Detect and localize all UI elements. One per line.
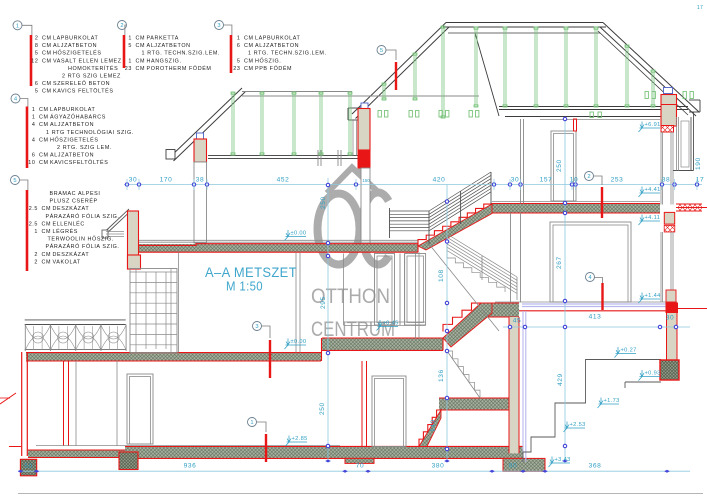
svg-text:70: 70: [356, 463, 365, 470]
svg-text:PLUSZ CSERÉP: PLUSZ CSERÉP: [50, 198, 98, 205]
svg-text:+2.85: +2.85: [292, 436, 308, 442]
svg-text:+4.41: +4.41: [645, 187, 661, 193]
svg-text:4: 4: [32, 122, 36, 128]
svg-text:1 RTG. TECHN.SZIG.LEM.: 1 RTG. TECHN.SZIG.LEM.: [248, 51, 327, 57]
svg-text:5: 5: [35, 51, 39, 57]
svg-text:2: 2: [587, 174, 590, 180]
svg-text:HŐSZIGETELÉS: HŐSZIGETELÉS: [53, 50, 102, 57]
svg-text:3: 3: [217, 23, 220, 29]
svg-text:HŐSZIGETELÉS: HŐSZIGETELÉS: [50, 136, 99, 143]
svg-text:190: 190: [695, 157, 702, 170]
svg-text:ALJZATBETON: ALJZATBETON: [50, 153, 94, 159]
svg-text:+2.53: +2.53: [570, 422, 586, 428]
svg-text:ALJZATBETON: ALJZATBETON: [147, 43, 191, 49]
svg-text:2 RTG. SZIG LEM.: 2 RTG. SZIG LEM.: [57, 145, 112, 151]
svg-text:CM: CM: [39, 115, 49, 121]
svg-text:HŐSZIG.: HŐSZIG.: [255, 57, 281, 64]
svg-text:5: 5: [35, 89, 39, 95]
svg-text:38: 38: [196, 177, 205, 184]
svg-text:38: 38: [662, 177, 671, 184]
svg-text:452: 452: [277, 177, 290, 184]
svg-text:KAVICS FELTÖLTÉS: KAVICS FELTÖLTÉS: [53, 88, 114, 95]
svg-text:17: 17: [696, 177, 705, 184]
svg-text:136: 136: [438, 369, 445, 382]
svg-text:VASALT ELLEN LEMEZ: VASALT ELLEN LEMEZ: [53, 58, 122, 64]
svg-text:ALJZATBETON: ALJZATBETON: [50, 122, 94, 128]
svg-text:ALJZATBETON: ALJZATBETON: [53, 43, 97, 49]
svg-text:170: 170: [160, 177, 173, 184]
svg-text:POROTHERM FÖDÉM: POROTHERM FÖDÉM: [147, 65, 212, 72]
svg-text:253: 253: [611, 177, 624, 184]
svg-text:12: 12: [31, 58, 38, 64]
svg-text:2: 2: [34, 252, 38, 258]
svg-text:368: 368: [589, 463, 602, 470]
svg-text:1: 1: [128, 36, 132, 42]
svg-text:CM: CM: [39, 137, 49, 143]
svg-text:2.5: 2.5: [29, 206, 38, 212]
svg-text:LAPBURKOLAT: LAPBURKOLAT: [255, 36, 301, 42]
svg-text:BRAMAC ALPESI: BRAMAC ALPESI: [50, 191, 101, 197]
svg-text:250: 250: [556, 159, 563, 172]
svg-text:±0.00: ±0.00: [291, 339, 307, 345]
svg-text:ELLENLÉC: ELLENLÉC: [53, 220, 85, 227]
svg-text:2: 2: [120, 23, 123, 29]
svg-text:+1.44: +1.44: [645, 293, 661, 299]
svg-text:5: 5: [237, 58, 241, 64]
svg-text:6: 6: [32, 153, 36, 159]
svg-text:1: 1: [34, 229, 38, 235]
svg-text:+0.45: +0.45: [383, 321, 399, 327]
svg-text:5: 5: [380, 48, 383, 54]
svg-text:2: 2: [34, 259, 38, 265]
svg-text:CM: CM: [244, 43, 254, 49]
svg-text:420: 420: [433, 177, 446, 184]
svg-text:17: 17: [697, 5, 703, 11]
svg-text:SZERELEŐ BETON: SZERELEŐ BETON: [53, 80, 110, 87]
svg-text:CM: CM: [42, 36, 52, 42]
svg-text:ALJZATBETON: ALJZATBETON: [255, 43, 299, 49]
svg-text:23: 23: [233, 66, 240, 72]
svg-text:5: 5: [13, 178, 16, 184]
svg-text:30: 30: [511, 177, 520, 184]
svg-text:10: 10: [28, 160, 35, 166]
svg-text:CM: CM: [136, 43, 146, 49]
svg-text:1: 1: [32, 107, 36, 113]
svg-text:2 RTG SZIG LEMEZ: 2 RTG SZIG LEMEZ: [62, 74, 121, 80]
svg-text:CM: CM: [136, 66, 146, 72]
svg-text:A–A METSZET: A–A METSZET: [205, 265, 297, 280]
svg-text:8: 8: [35, 43, 39, 49]
svg-text:PÁRAZÁRÓ FÓLIA SZIG.: PÁRAZÁRÓ FÓLIA SZIG.: [46, 243, 120, 250]
svg-text:2: 2: [35, 36, 39, 42]
svg-text:149: 149: [430, 419, 437, 432]
svg-text:250: 250: [319, 402, 326, 415]
svg-text:CM: CM: [42, 252, 52, 258]
svg-text:6: 6: [35, 81, 39, 87]
svg-text:CM: CM: [42, 81, 52, 87]
svg-text:1: 1: [128, 58, 132, 64]
svg-text:CM: CM: [42, 206, 52, 212]
svg-text:M 1:50: M 1:50: [226, 280, 263, 294]
svg-text:CM: CM: [39, 153, 49, 159]
svg-text:23: 23: [125, 66, 132, 72]
svg-text:157: 157: [540, 177, 553, 184]
svg-text:+0.27: +0.27: [621, 348, 637, 354]
svg-text:PARKETTA: PARKETTA: [147, 36, 179, 42]
svg-text:50: 50: [24, 463, 33, 470]
svg-text:413: 413: [589, 314, 602, 321]
svg-text:45: 45: [513, 318, 522, 325]
svg-text:CM: CM: [39, 122, 49, 128]
svg-text:250: 250: [320, 196, 327, 209]
svg-text:30: 30: [129, 177, 138, 184]
svg-text:LAPBURKOLAT: LAPBURKOLAT: [50, 107, 96, 113]
svg-text:CM: CM: [244, 36, 254, 42]
svg-text:1 RTG. TECHN.SZIG.LEM.: 1 RTG. TECHN.SZIG.LEM.: [142, 51, 221, 57]
svg-text:2.5: 2.5: [29, 221, 38, 227]
svg-text:LAPBURKOLAT: LAPBURKOLAT: [53, 36, 99, 42]
svg-text:429: 429: [557, 373, 564, 386]
svg-text:80: 80: [509, 463, 518, 470]
svg-text:CM: CM: [42, 43, 52, 49]
svg-text:150: 150: [362, 178, 370, 183]
svg-text:5: 5: [128, 43, 132, 49]
svg-text:DESZKÁZAT: DESZKÁZAT: [53, 205, 90, 212]
svg-text:1 RTG TECHNOLÓGIAI SZIG.: 1 RTG TECHNOLÓGIAI SZIG.: [46, 129, 134, 136]
svg-text:30: 30: [666, 315, 675, 322]
svg-text:380: 380: [432, 463, 445, 470]
svg-text:±0.00: ±0.00: [291, 231, 307, 237]
svg-text:CM: CM: [42, 259, 52, 265]
svg-text:ÁGYAZÓHABARCS: ÁGYAZÓHABARCS: [50, 114, 106, 121]
svg-text:6: 6: [237, 43, 241, 49]
svg-text:LÉGRÉS: LÉGRÉS: [53, 228, 78, 235]
svg-text:PÁRAZÁRÓ FÓLIA SZIG.: PÁRAZÁRÓ FÓLIA SZIG.: [46, 213, 120, 220]
svg-text:+6.91: +6.91: [645, 122, 661, 128]
svg-text:CM: CM: [244, 66, 254, 72]
svg-text:CM: CM: [42, 89, 52, 95]
svg-text:+4.11: +4.11: [645, 215, 661, 221]
svg-text:KAVICSFELTÖLTÉS: KAVICSFELTÖLTÉS: [50, 159, 108, 166]
svg-text:1: 1: [237, 36, 241, 42]
svg-text:+1.73: +1.73: [604, 398, 620, 404]
svg-text:TERWOOLIN HŐSZIG.: TERWOOLIN HŐSZIG.: [48, 236, 114, 243]
svg-text:1: 1: [32, 115, 36, 121]
svg-text:CM: CM: [42, 221, 52, 227]
svg-text:CM: CM: [42, 51, 52, 57]
svg-text:1: 1: [16, 23, 19, 29]
svg-text:267: 267: [556, 256, 563, 269]
svg-text:CM: CM: [39, 160, 49, 166]
svg-text:PPB FÖDÉM: PPB FÖDÉM: [255, 65, 292, 72]
svg-text:+3.43: +3.43: [555, 457, 571, 463]
svg-text:CM: CM: [42, 58, 52, 64]
svg-text:4: 4: [32, 137, 36, 143]
svg-text:CM: CM: [136, 58, 146, 64]
svg-text:+0.93: +0.93: [645, 371, 661, 377]
svg-text:10: 10: [570, 177, 579, 184]
svg-text:3: 3: [255, 324, 258, 330]
svg-text:936: 936: [184, 463, 197, 470]
svg-text:DESZKÁZAT: DESZKÁZAT: [53, 251, 90, 258]
svg-text:108: 108: [438, 269, 445, 282]
svg-text:CM: CM: [136, 36, 146, 42]
svg-text:CM: CM: [244, 58, 254, 64]
svg-text:CM: CM: [39, 107, 49, 113]
svg-text:295: 295: [320, 296, 327, 309]
svg-text:1: 1: [250, 420, 253, 426]
svg-text:HOMOKTERÍTÉS: HOMOKTERÍTÉS: [68, 65, 118, 72]
svg-text:VAKOLAT: VAKOLAT: [53, 259, 81, 265]
svg-text:HANGSZIG.: HANGSZIG.: [147, 58, 182, 64]
svg-text:CM: CM: [42, 229, 52, 235]
